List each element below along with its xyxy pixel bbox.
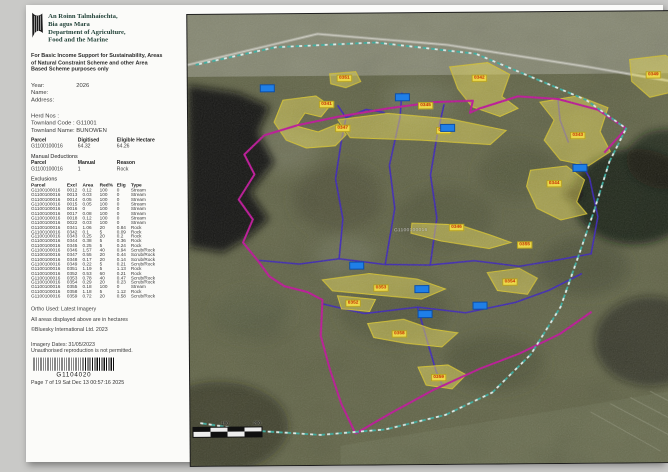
department-brand: An Roinn Talmhaíochta, Bia agus Mara Dep…	[31, 12, 165, 43]
stream-marker-label	[349, 262, 364, 270]
barcode-block: G1104020	[31, 358, 117, 378]
holding-field-label: Herd Nos :	[31, 111, 76, 118]
parcel-exclusion-label: 0346	[449, 224, 464, 231]
parcel-exclusion-label: 0354	[502, 278, 517, 285]
parcel-summary-cell: 64.26	[117, 144, 159, 150]
manual-deduction-cell: 1	[78, 167, 117, 173]
parcel-exclusion-label: 0352	[345, 300, 360, 307]
holding-field-label: Townland Code :	[31, 119, 76, 126]
parcel-exclusion-label: 0353	[373, 284, 388, 291]
exclusions-title: Exclusions	[31, 176, 165, 183]
holding-field-row: Herd Nos :	[31, 111, 165, 118]
field-row: Address:	[31, 96, 165, 103]
field-row: Year:2026	[31, 81, 165, 88]
parcel-summary-table: ParcelDigitisedEligible HectareG11001000…	[31, 138, 165, 150]
holding-field-label: Townland Name:	[31, 126, 76, 133]
parcel-summary-cell: G1100100016	[31, 144, 78, 150]
scale-bar: 100200	[192, 420, 262, 438]
dept-line: An Roinn Talmhaíochta,	[48, 12, 125, 20]
exclusions-cell: Scrub/Rock	[131, 295, 159, 300]
unauthorised-note: Unauthorised reproduction is not permitt…	[31, 348, 165, 354]
scale-label: 200	[253, 421, 261, 426]
irish-harp-icon	[31, 12, 43, 39]
field-value	[76, 89, 165, 96]
manual-deduction-cell: G1100100016	[31, 167, 78, 173]
field-value	[76, 96, 165, 103]
department-name: An Roinn Talmhaíochta, Bia agus Mara Dep…	[48, 12, 125, 43]
parcel-exclusion-label: 0345	[418, 102, 433, 109]
parcel-map: 100200 035103410345034203470348034903430…	[186, 10, 668, 467]
holding-field-value: G11001	[76, 119, 165, 126]
field-label: Name:	[31, 89, 76, 96]
page-number-line: Page 7 of 19 Sat Dec 13 00:57:16 2025	[31, 380, 165, 385]
field-label: Address:	[31, 96, 76, 103]
parcel-exclusion-label: 0347	[335, 125, 350, 132]
holding-field-value: BUNOWEN	[76, 126, 165, 133]
holding-field-value	[76, 111, 165, 118]
field-label: Year:	[31, 81, 76, 88]
parcel-exclusion-label: 0355	[517, 241, 532, 248]
parcel-exclusion-label: 0341	[319, 101, 334, 108]
parcel-summary: ParcelDigitisedEligible HectareG11001000…	[31, 138, 165, 150]
parcel-exclusion-label: 0342	[472, 75, 487, 82]
year-name-address-fields: Year:2026Name:Address:	[31, 81, 165, 103]
map-purpose-note: For Basic Income Support for Sustainabil…	[31, 53, 165, 73]
parcel-exclusion-label: 0351	[337, 75, 352, 82]
stream-marker-label	[414, 285, 429, 293]
parcel-exclusion-label: 0349	[646, 71, 661, 78]
stream-marker-label	[440, 124, 455, 132]
barcode	[33, 358, 114, 371]
parcel-exclusion-label: 0344	[547, 180, 562, 187]
exclusions-cell: 0359	[67, 295, 83, 300]
ortho-used-note: Ortho Used: Latest Imagery	[31, 305, 165, 315]
copyright-note: ©Bluesky International Ltd. 2023	[31, 325, 165, 335]
footer-notes: Ortho Used: Latest Imagery All areas dis…	[31, 305, 165, 355]
manual-deduction: ParcelManualReasonG11001000161Rock	[31, 160, 165, 172]
parcel-exclusion-label: 0343	[570, 132, 585, 139]
stream-marker-label	[395, 93, 410, 101]
holding-field-row: Townland Code :G11001	[31, 119, 165, 126]
info-panel: An Roinn Talmhaíochta, Bia agus Mara Dep…	[31, 12, 165, 386]
exclusions-cell: G1100100016	[31, 295, 67, 300]
hectares-note: All areas displayed above are in hectare…	[31, 315, 165, 325]
document-page: An Roinn Talmhaíochta, Bia agus Mara Dep…	[26, 5, 663, 462]
manual-deductions-title: Manual Deductions	[31, 153, 165, 160]
field-row: Name:	[31, 89, 165, 96]
manual-deduction-cell: Rock	[117, 167, 159, 173]
stream-marker-label	[418, 310, 433, 318]
parcel-exclusion-label: 0359	[431, 374, 446, 381]
stream-marker-label	[260, 84, 275, 92]
barcode-value: G1104020	[31, 371, 117, 378]
dept-line: Bia agus Mara	[48, 20, 125, 28]
herd-townland-fields: Herd Nos :Townland Code :G11001Townland …	[31, 111, 165, 133]
manual-deductions-table: ParcelManualReasonG11001000161Rock	[31, 160, 165, 172]
parcel-exclusion-label: 0358	[392, 330, 407, 337]
dept-line: Department of Agriculture,	[48, 28, 125, 36]
parcel-summary-cell: 64.32	[78, 144, 117, 150]
map-parcel-id-label: G1100100016	[394, 228, 428, 233]
holding-field-row: Townland Name:BUNOWEN	[31, 126, 165, 133]
exclusions-cell: 0.58	[117, 295, 131, 300]
field-value: 2026	[76, 81, 165, 88]
exclusions-cell: 20	[100, 295, 117, 300]
scanned-page-background: An Roinn Talmhaíochta, Bia agus Mara Dep…	[0, 0, 668, 472]
dept-line: Food and the Marine	[48, 35, 125, 43]
map-overlay: 100200 035103410345034203470348034903430…	[187, 11, 668, 466]
stream-marker-label	[472, 302, 487, 310]
scale-label: 100	[221, 421, 229, 426]
exclusions-cell: 0.72	[82, 295, 99, 300]
exclusions-table: ParcelExclAreaRed%EligTypeG1100100016001…	[31, 183, 165, 300]
stream-marker-label	[572, 164, 587, 172]
scale-bar-segments	[192, 426, 262, 438]
